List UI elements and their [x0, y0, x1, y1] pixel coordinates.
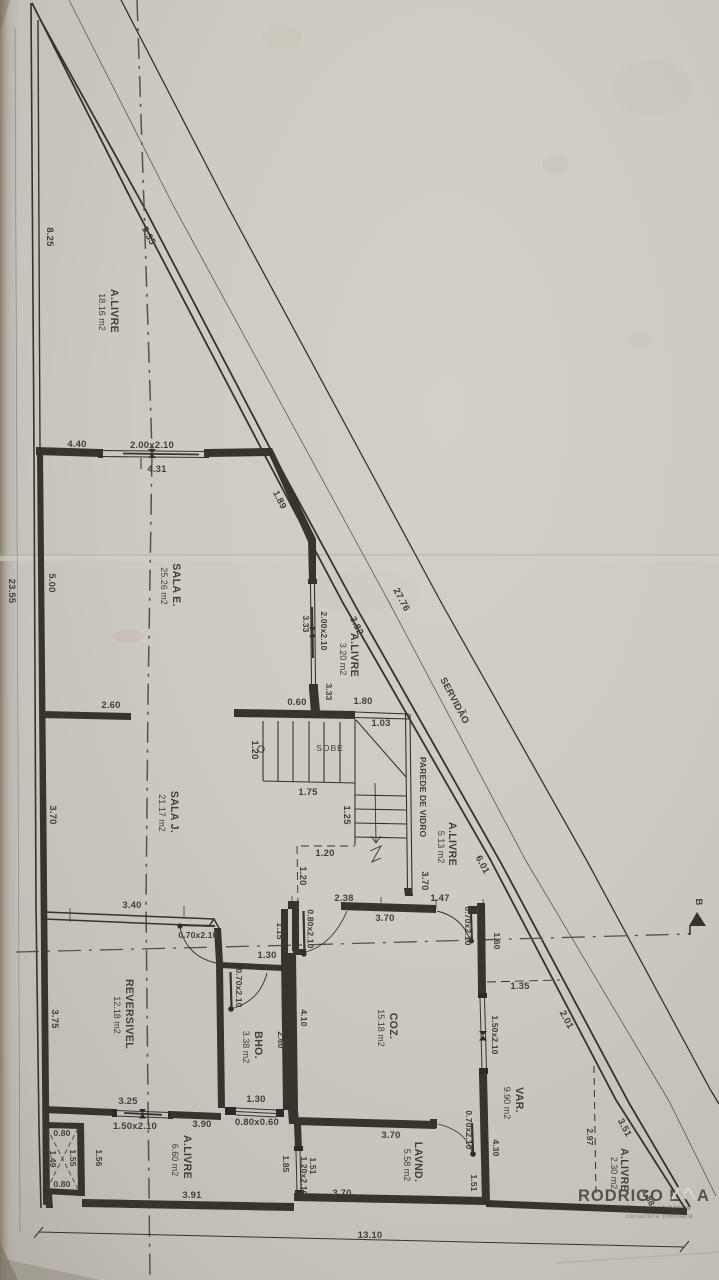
svg-text:4.31: 4.31	[147, 464, 167, 475]
svg-text:5.58 m2: 5.58 m2	[402, 1149, 412, 1182]
svg-text:3.40: 3.40	[122, 900, 141, 911]
svg-text:1.49: 1.49	[48, 1150, 58, 1167]
svg-text:0.80x0.60: 0.80x0.60	[235, 1117, 279, 1128]
svg-text:3.70: 3.70	[375, 913, 394, 924]
svg-text:15.18 m2: 15.18 m2	[376, 1009, 386, 1047]
svg-text:3.70: 3.70	[381, 1130, 400, 1141]
svg-text:4.30: 4.30	[491, 1139, 501, 1156]
svg-text:SOBE: SOBE	[316, 743, 344, 753]
svg-text:1.47: 1.47	[430, 893, 449, 904]
svg-text:18.16 m2: 18.16 m2	[97, 293, 107, 331]
svg-text:A.LIVRE: A.LIVRE	[348, 633, 360, 677]
svg-text:13.10: 13.10	[358, 1230, 383, 1241]
svg-text:REVERSIVEL: REVERSIVEL	[123, 979, 135, 1049]
svg-text:1.35: 1.35	[510, 981, 530, 992]
svg-text:2.30 m2: 2.30 m2	[609, 1157, 619, 1190]
svg-text:5.13 m2: 5.13 m2	[436, 831, 446, 864]
svg-text:SALA E.: SALA E.	[170, 563, 182, 607]
svg-text:0.60: 0.60	[287, 697, 306, 708]
svg-text:23.55: 23.55	[6, 579, 17, 604]
svg-text:2.00x2.10: 2.00x2.10	[130, 440, 174, 451]
svg-text:A: A	[697, 1187, 709, 1205]
svg-text:1.51: 1.51	[469, 1174, 479, 1191]
svg-text:A.LIVRE: A.LIVRE	[108, 289, 120, 333]
svg-text:PAREDE DE VIDRO: PAREDE DE VIDRO	[418, 757, 428, 838]
svg-text:1.30: 1.30	[257, 950, 276, 961]
svg-text:2.38: 2.38	[334, 893, 353, 904]
svg-text:Negócios Imobiliários: Negócios Imobiliários	[612, 1205, 691, 1212]
svg-text:1.20: 1.20	[249, 740, 260, 759]
svg-text:0.70x2.10: 0.70x2.10	[234, 968, 244, 1007]
svg-text:3.70: 3.70	[47, 805, 58, 824]
svg-text:3.33: 3.33	[301, 615, 311, 632]
svg-text:B: B	[693, 898, 704, 905]
svg-text:1.85: 1.85	[281, 1155, 291, 1172]
svg-text:RODRIGO L: RODRIGO L	[578, 1187, 681, 1205]
svg-text:3.91: 3.91	[182, 1190, 202, 1201]
svg-text:3.25: 3.25	[118, 1096, 138, 1107]
svg-text:6.60 m2: 6.60 m2	[170, 1144, 180, 1177]
svg-text:12.18 m2: 12.18 m2	[112, 996, 122, 1034]
svg-text:1.60: 1.60	[492, 932, 502, 949]
svg-text:COZ.: COZ.	[387, 1013, 399, 1040]
svg-text:0.70x2.10: 0.70x2.10	[178, 930, 217, 940]
svg-text:BHO.: BHO.	[252, 1031, 264, 1059]
svg-text:VAR.: VAR.	[513, 1087, 525, 1113]
svg-text:1.20x2.10: 1.20x2.10	[299, 1156, 309, 1195]
svg-text:9.90 m2: 9.90 m2	[502, 1087, 512, 1120]
svg-text:1.20: 1.20	[297, 866, 308, 885]
svg-text:1.55: 1.55	[68, 1149, 78, 1166]
svg-text:0.80: 0.80	[53, 1128, 70, 1138]
svg-text:3.20 m2: 3.20 m2	[338, 643, 348, 676]
svg-text:4.10: 4.10	[299, 1009, 309, 1026]
svg-text:1.50x2.10: 1.50x2.10	[113, 1121, 157, 1132]
svg-text:0.70x2.10: 0.70x2.10	[463, 906, 473, 945]
svg-text:A.LIVRE: A.LIVRE	[181, 1135, 193, 1179]
svg-text:4.40: 4.40	[67, 439, 86, 450]
svg-text:1.80: 1.80	[353, 696, 372, 707]
svg-text:1.75: 1.75	[298, 787, 318, 798]
svg-text:8.25: 8.25	[44, 227, 55, 247]
svg-text:1.25: 1.25	[341, 805, 352, 825]
svg-text:2.97: 2.97	[585, 1128, 595, 1145]
svg-text:A.LIVRE: A.LIVRE	[446, 822, 458, 866]
svg-text:3.33: 3.33	[324, 683, 334, 700]
svg-text:1.30: 1.30	[246, 1094, 265, 1105]
svg-text:3.38 m2: 3.38 m2	[241, 1031, 251, 1064]
svg-text:0.80: 0.80	[53, 1179, 70, 1189]
svg-text:3.75: 3.75	[49, 1009, 60, 1029]
svg-text:0.80x2.10: 0.80x2.10	[306, 909, 316, 948]
svg-text:3.70: 3.70	[332, 1188, 351, 1199]
svg-text:2.00x2.10: 2.00x2.10	[319, 611, 329, 650]
svg-text:consultoria imobiliária: consultoria imobiliária	[626, 1214, 693, 1220]
svg-text:LAVND.: LAVND.	[412, 1142, 424, 1182]
svg-text:3.90: 3.90	[192, 1119, 211, 1130]
svg-text:1.56: 1.56	[94, 1149, 104, 1166]
svg-text:2.60: 2.60	[101, 700, 120, 711]
svg-text:5.00: 5.00	[46, 573, 57, 592]
svg-text:1.15: 1.15	[275, 922, 285, 939]
svg-text:1.50x2.10: 1.50x2.10	[490, 1015, 500, 1054]
svg-text:1.20: 1.20	[315, 848, 334, 859]
svg-text:2.60: 2.60	[276, 1031, 286, 1048]
svg-text:21.17 m2: 21.17 m2	[157, 794, 167, 832]
svg-text:0.70x2.10: 0.70x2.10	[464, 1110, 474, 1149]
svg-text:SALA J.: SALA J.	[168, 791, 180, 833]
svg-text:1.03: 1.03	[371, 718, 390, 729]
svg-text:3.70: 3.70	[419, 871, 430, 890]
svg-text:25.26 m2: 25.26 m2	[159, 567, 169, 605]
